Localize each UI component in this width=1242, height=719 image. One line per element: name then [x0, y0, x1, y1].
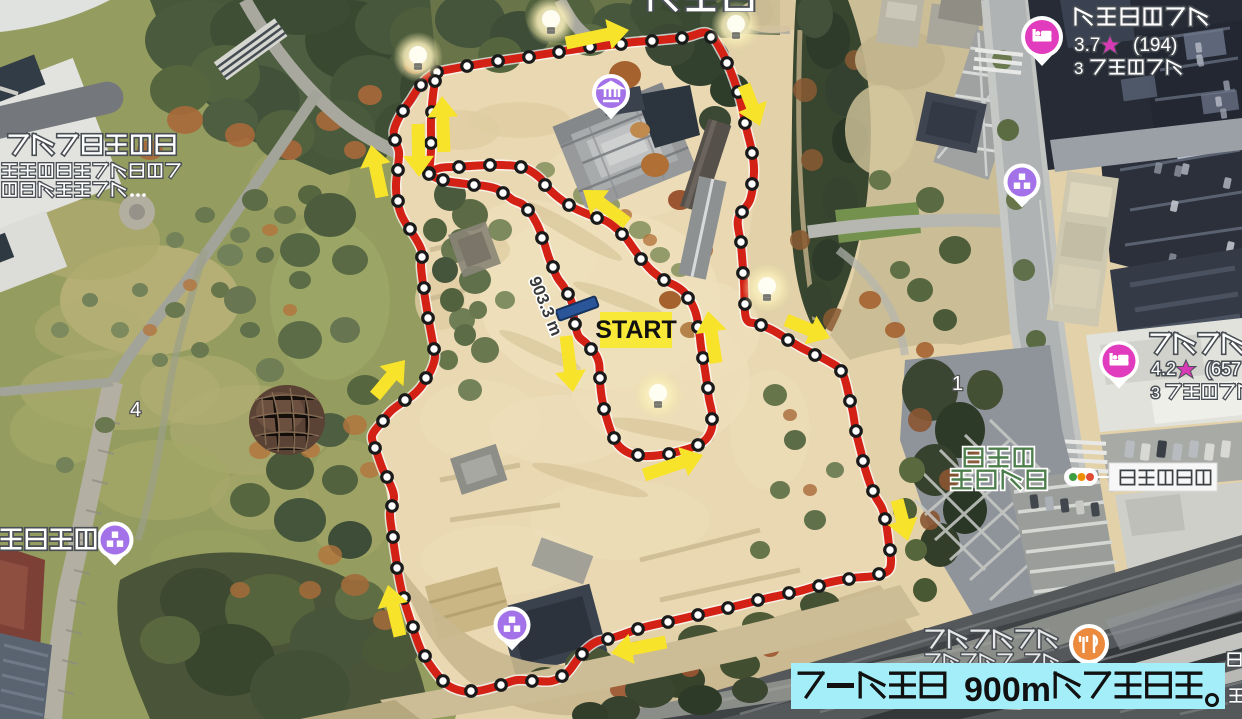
- svg-text:4: 4: [130, 399, 141, 421]
- svg-text:START: START: [595, 316, 676, 344]
- svg-text:(657: (657: [1205, 359, 1241, 379]
- svg-text:900m: 900m: [964, 671, 1051, 709]
- svg-text:(194): (194): [1133, 35, 1177, 56]
- svg-text:3: 3: [1074, 59, 1083, 78]
- svg-text:3.7: 3.7: [1074, 35, 1100, 56]
- svg-text:4.2: 4.2: [1151, 359, 1176, 379]
- svg-text:3: 3: [1151, 385, 1160, 402]
- svg-text:1: 1: [952, 373, 963, 395]
